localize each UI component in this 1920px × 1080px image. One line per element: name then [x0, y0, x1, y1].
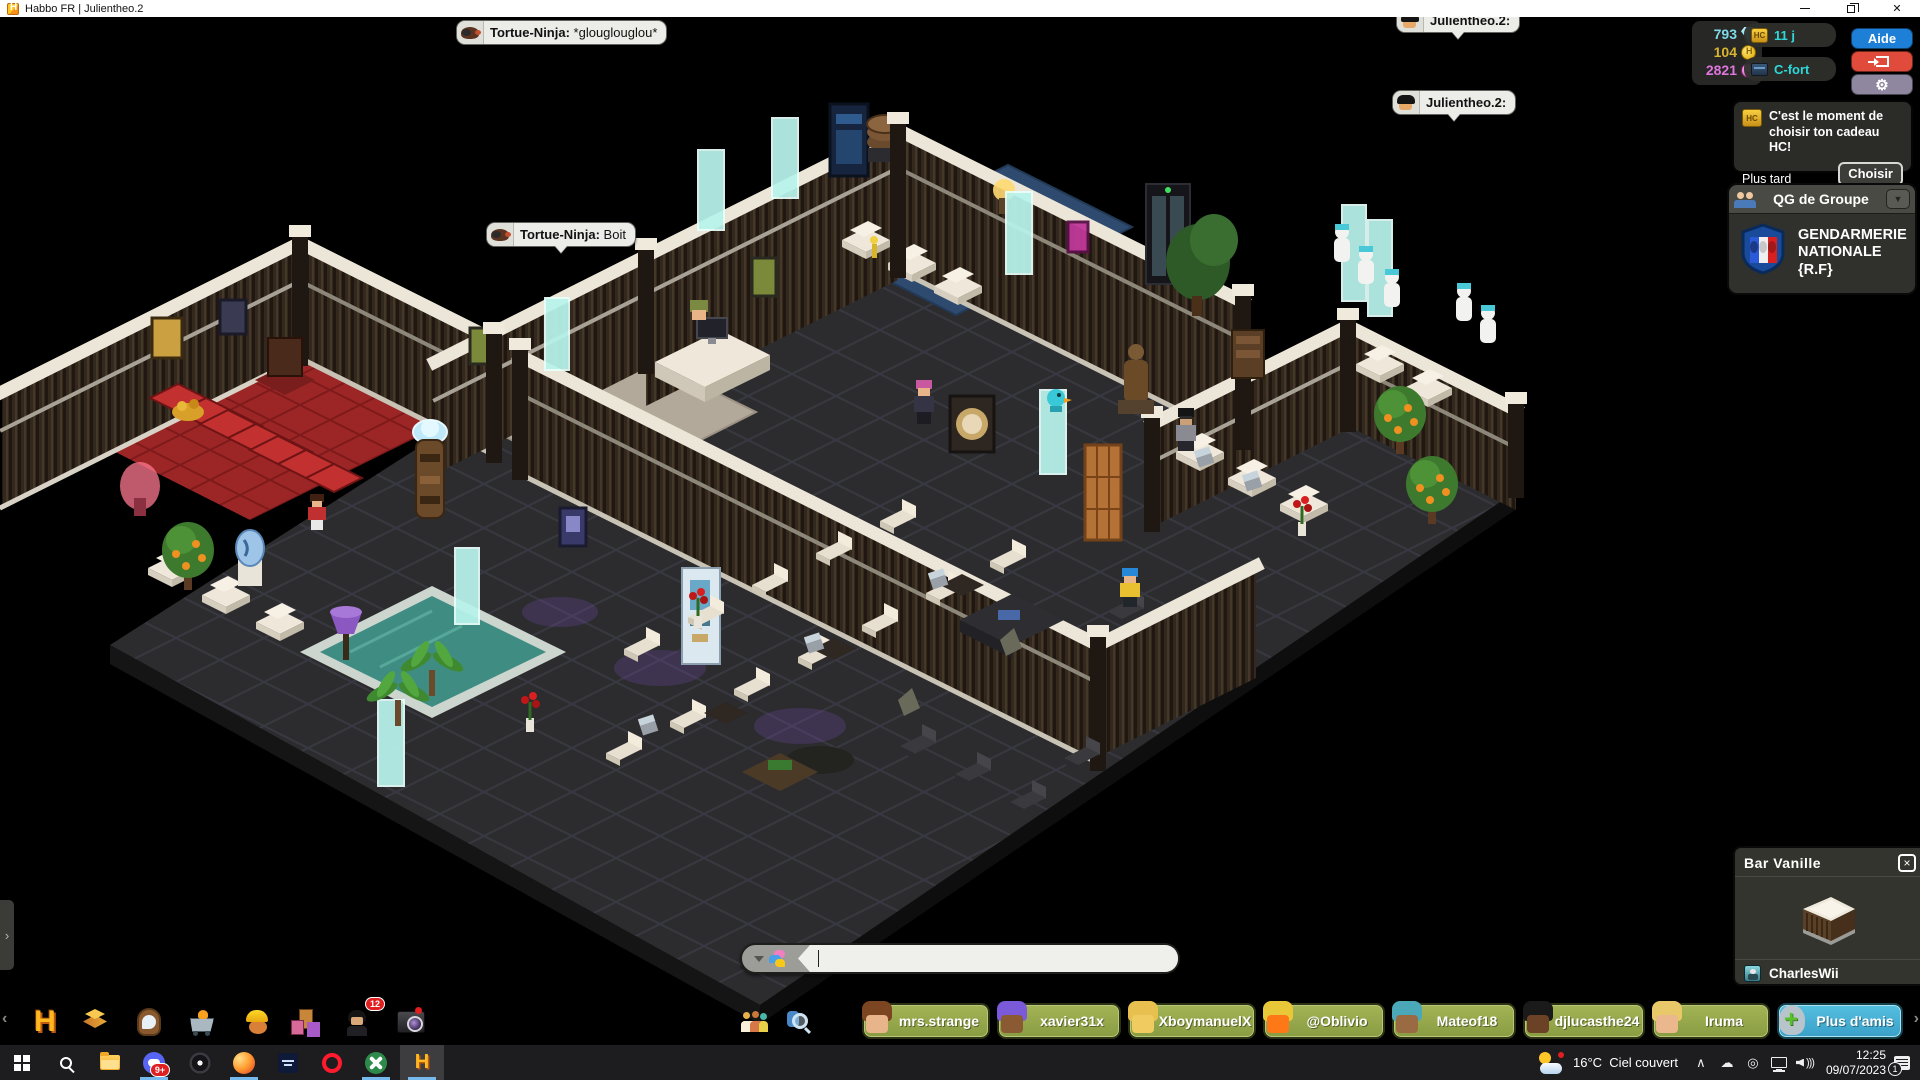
habbo-toolbar: ‹ H 12 mrs.strange xavier31x XboymanuelX…: [0, 998, 1920, 1045]
window-titlebar: Habbo FR | Julientheo.2 ✕: [0, 0, 1920, 17]
avatar-wardrobe-button[interactable]: [128, 1001, 170, 1043]
weather-widget[interactable]: 16°C Ciel couvert: [1527, 1045, 1688, 1080]
camera-icon: [397, 1011, 425, 1033]
search-icon: [785, 1009, 811, 1035]
meet-now-icon[interactable]: ◎: [1740, 1045, 1766, 1080]
hotel-view-button[interactable]: H: [24, 1001, 66, 1043]
weather-temp: 16°C: [1573, 1055, 1602, 1070]
weather-desc: Ciel couvert: [1609, 1055, 1678, 1070]
exit-icon: [1876, 56, 1889, 67]
julientheo-avatar-icon: [1397, 95, 1415, 111]
friend-avatar: [993, 1001, 1031, 1041]
hc-notification: HC C'est le moment de choisir ton cadeau…: [1732, 100, 1913, 173]
restore-button[interactable]: [1828, 0, 1874, 17]
turtle-avatar-icon: [461, 27, 479, 39]
group-badge[interactable]: [1737, 223, 1789, 275]
habbo-window-icon: [7, 3, 19, 15]
group-hq-panel: QG de Groupe ▼ GENDARMERIE NATIONALE {R.…: [1727, 183, 1917, 295]
chevron-down-icon: [754, 956, 764, 962]
discord-button[interactable]: 9+: [132, 1045, 176, 1080]
volume-icon[interactable]: ))): [1792, 1045, 1818, 1080]
cabinet: [1232, 330, 1264, 378]
room-scene[interactable]: [0, 17, 1920, 1045]
utorrent-button[interactable]: [178, 1045, 222, 1080]
chat-bubble[interactable]: Tortue-Ninja: *glouglouglou*: [456, 20, 667, 45]
gear-icon: ⚙: [1875, 76, 1888, 94]
friend-avatar: [1124, 1001, 1162, 1041]
chat-bubble[interactable]: Tortue-Ninja: Boit: [486, 222, 636, 247]
opera-button[interactable]: [310, 1045, 354, 1080]
construction-helmet-icon: [244, 1010, 270, 1034]
settings-button[interactable]: ⚙: [1851, 74, 1913, 95]
avatar-pink-hair: [914, 380, 934, 424]
tray-expand-icon[interactable]: ∧: [1688, 1045, 1714, 1080]
chat-bubble[interactable]: Julientheo.2:: [1392, 90, 1516, 115]
cinema-poster: [152, 318, 182, 358]
chat-bubble-avatar: [1393, 91, 1420, 114]
shop-button[interactable]: [182, 1001, 224, 1043]
close-icon[interactable]: ×: [1898, 854, 1916, 872]
shoji-screen: [1085, 445, 1121, 540]
utorrent-icon: [189, 1052, 211, 1074]
hc-badge-icon: HC: [1742, 109, 1762, 127]
weather-icon: [1537, 1052, 1565, 1074]
messenger-button[interactable]: 12: [336, 1001, 378, 1043]
file-explorer-button[interactable]: [88, 1045, 132, 1080]
game-app-icon: [278, 1053, 298, 1073]
wardrobe-head-icon: [137, 1008, 161, 1036]
system-tray: 16°C Ciel couvert ∧ ☁ ◎ ))) 12:25 09/07/…: [1527, 1045, 1920, 1080]
users-group-icon: [741, 1010, 769, 1034]
opera-icon: [322, 1053, 342, 1073]
cfort-icon: [1751, 63, 1768, 76]
habbo-taskbar-button[interactable]: H: [400, 1045, 444, 1080]
chat-input[interactable]: [798, 945, 1178, 972]
hc-days-button[interactable]: HC 11 j: [1744, 23, 1836, 47]
chat-bubbles-icon: [769, 950, 787, 968]
clock-time: 12:25: [1826, 1048, 1886, 1063]
shopping-cart-icon: [190, 1010, 216, 1034]
friend-avatar: [1648, 1001, 1686, 1041]
julientheo-avatar-icon: [1401, 17, 1419, 29]
rooms-cube-icon: [82, 1009, 108, 1035]
cfort-button[interactable]: C-fort: [1744, 57, 1836, 81]
friend-avatar: [1259, 1001, 1297, 1041]
navigator-button[interactable]: [74, 1001, 116, 1043]
furni-preview: [1735, 877, 1920, 959]
inventory-button[interactable]: [284, 1001, 326, 1043]
habbo-logo-icon: H: [34, 1005, 56, 1039]
green-app-button[interactable]: [354, 1045, 398, 1080]
toolbar-next-icon[interactable]: ›: [1914, 1010, 1919, 1028]
water-cooler: [236, 530, 264, 586]
friend-button[interactable]: @Oblivio: [1263, 1003, 1385, 1039]
more-friends-button[interactable]: Plus d'amis: [1777, 1003, 1903, 1039]
discord-icon: 9+: [143, 1052, 165, 1074]
logout-button[interactable]: [1851, 51, 1913, 72]
firefox-button[interactable]: [222, 1045, 266, 1080]
duckets-value: 2821: [1706, 62, 1737, 78]
diamonds-value: 793: [1714, 26, 1737, 42]
owner-avatar-icon: [1744, 965, 1761, 982]
firefox-icon: [233, 1052, 255, 1074]
chat-style-selector[interactable]: [742, 945, 798, 972]
taskbar-clock[interactable]: 12:25 09/07/2023: [1818, 1048, 1894, 1078]
game-area: Tortue-Ninja: *glouglouglou* Julientheo.…: [0, 17, 1920, 1045]
chevron-down-icon[interactable]: ▼: [1886, 189, 1910, 209]
avatar-blue-hair: [1120, 568, 1140, 607]
notification-center-button[interactable]: 1: [1894, 1045, 1914, 1080]
build-mode-button[interactable]: [236, 1001, 278, 1043]
group-icon: [1734, 190, 1756, 208]
sidebar-toggle[interactable]: ›: [0, 900, 14, 970]
chat-bubble[interactable]: Julientheo.2:: [1396, 17, 1520, 33]
friend-button[interactable]: Mateof18: [1392, 1003, 1516, 1039]
tiki-totem: [413, 419, 447, 518]
chat-bubble-avatar: [1397, 17, 1424, 32]
help-button[interactable]: Aide: [1851, 28, 1913, 49]
furniture-stack-icon: [291, 1009, 319, 1035]
close-button[interactable]: ✕: [1874, 0, 1920, 17]
minimize-button[interactable]: [1782, 0, 1828, 17]
window-title: Habbo FR | Julientheo.2: [25, 3, 143, 15]
group-panel-title: QG de Groupe: [1756, 191, 1886, 207]
furni-owner[interactable]: CharlesWii: [1769, 966, 1839, 981]
friend-avatar: [1388, 1001, 1426, 1041]
notification-message: C'est le moment de choisir ton cadeau HC…: [1769, 109, 1903, 156]
friend-button[interactable]: Iruma: [1652, 1003, 1770, 1039]
chat-input-bar: [740, 943, 1180, 974]
game-app-button[interactable]: [266, 1045, 310, 1080]
friend-button[interactable]: XboymanuelX: [1128, 1003, 1256, 1039]
hud-purse: 793 104 2821 HC 11 j C-fort Aide ⚙: [1692, 19, 1920, 101]
notification-count: 1: [1888, 1062, 1902, 1076]
add-friend-icon: [1775, 1003, 1811, 1041]
clock-date: 09/07/2023: [1826, 1063, 1886, 1078]
taskbar-search-button[interactable]: [44, 1045, 88, 1080]
chat-bubble-avatar: [457, 21, 484, 44]
camera-button[interactable]: [390, 1001, 432, 1043]
hc-badge-icon: HC: [1751, 28, 1768, 43]
messenger-badge: 12: [365, 997, 385, 1011]
coins-value: 104: [1714, 44, 1737, 60]
friend-avatar: [858, 1001, 896, 1041]
avatar-sunglasses: [1176, 408, 1196, 451]
windows-taskbar: 9+ H 16°C Ciel couvert ∧ ☁ ◎ ))) 12:25 0…: [0, 1045, 1920, 1080]
start-button[interactable]: [0, 1045, 44, 1080]
toolbar-collapse-icon[interactable]: ‹: [2, 1010, 7, 1028]
folder-icon: [100, 1055, 120, 1070]
network-icon[interactable]: [1766, 1045, 1792, 1080]
windows-logo-icon: [14, 1055, 30, 1071]
onedrive-icon[interactable]: ☁: [1714, 1045, 1740, 1080]
discord-badge: 9+: [150, 1063, 170, 1077]
messenger-avatar-icon: [344, 1008, 370, 1036]
friend-avatar: [1519, 1001, 1557, 1041]
furni-info-panel: Bar Vanille × CharlesWii: [1733, 846, 1920, 986]
room-users-button[interactable]: [734, 1001, 776, 1043]
chat-bubble-avatar: [487, 223, 514, 246]
friend-button[interactable]: djlucasthe24: [1523, 1003, 1645, 1039]
turtle-avatar-icon: [491, 229, 509, 241]
search-icon: [60, 1057, 72, 1069]
green-app-icon: [365, 1052, 387, 1074]
friend-button[interactable]: mrs.strange: [862, 1003, 990, 1039]
group-name[interactable]: GENDARMERIE NATIONALE {R.F}: [1798, 223, 1907, 279]
habbo-logo-icon: H: [415, 1051, 429, 1074]
search-button[interactable]: [777, 1001, 819, 1043]
friend-button[interactable]: xavier31x: [997, 1003, 1121, 1039]
furni-panel-title: Bar Vanille: [1744, 855, 1821, 871]
